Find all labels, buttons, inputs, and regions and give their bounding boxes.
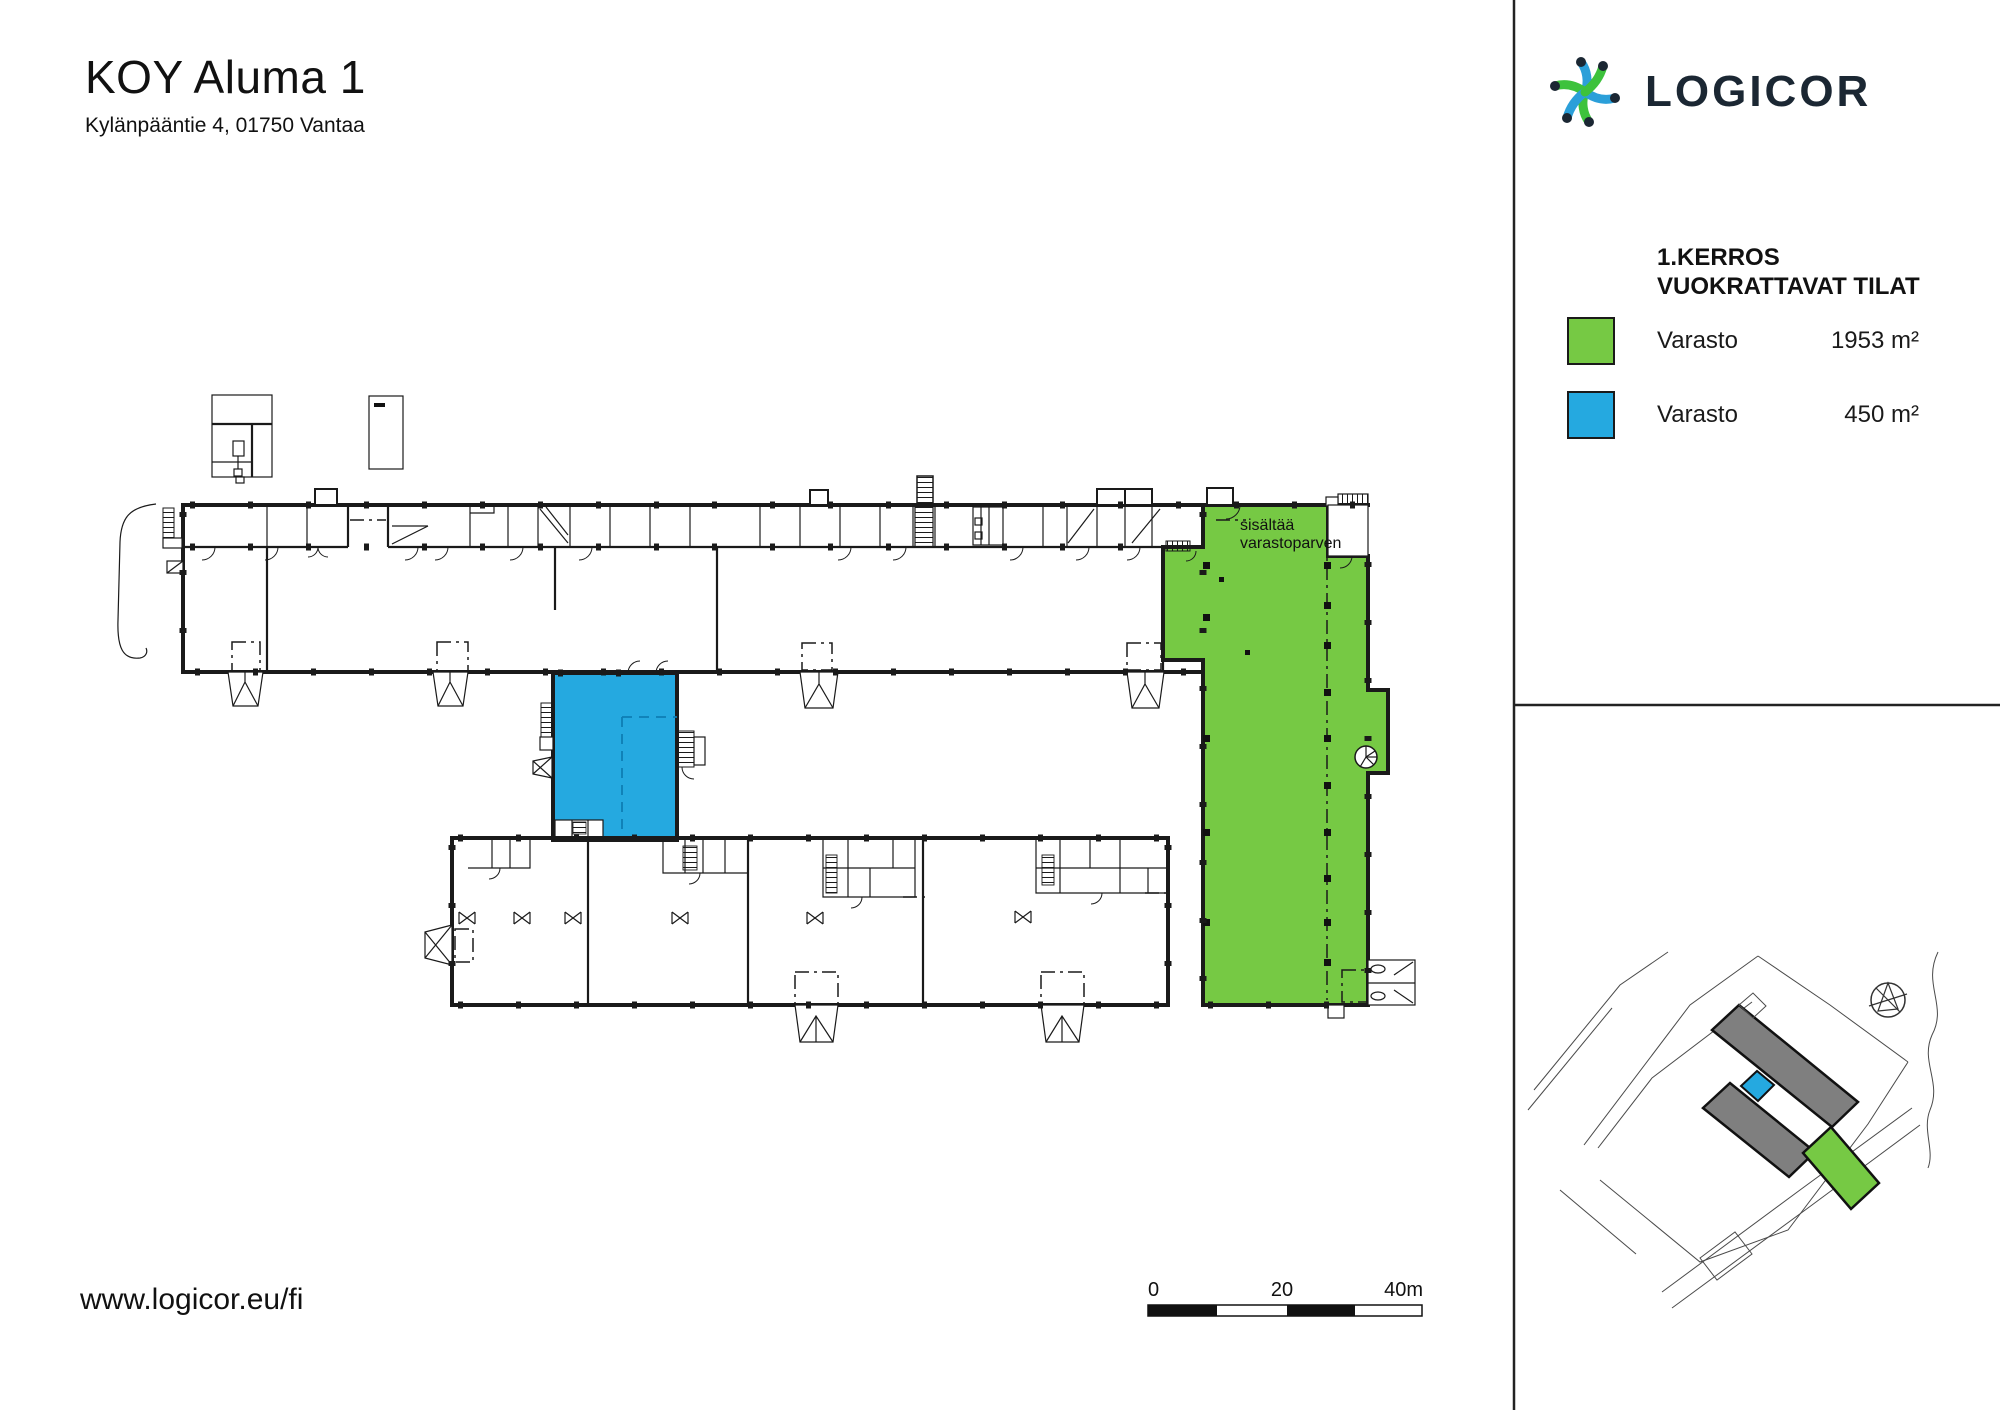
logicor-wordmark: LOGICOR: [1645, 67, 1871, 117]
legend-swatch-blue: [1567, 391, 1615, 439]
logicor-logo-icon: [1545, 52, 1625, 132]
north-compass-icon: [1869, 983, 1907, 1017]
logicor-logo: LOGICOR: [1545, 52, 1871, 132]
scale-zero: 0: [1148, 1279, 1159, 1301]
property-title: KOY Aluma 1: [85, 50, 366, 104]
legend-label-blue: Varasto: [1657, 401, 1738, 429]
legend-title-line2: VUOKRATTAVAT TILAT: [1657, 272, 1920, 301]
legend-header: 1.KERROS VUOKRATTAVAT TILAT: [1657, 243, 1920, 301]
bottom-wing: [425, 838, 1172, 1042]
legend-area-green: 1953 m²: [1831, 327, 1919, 355]
blue-highlight-area: [553, 673, 677, 840]
legend-swatch-green: [1567, 317, 1615, 365]
legend-area-blue: 450 m²: [1844, 401, 1919, 429]
top-wing-docks: [228, 672, 1164, 708]
annotation-line2: varastoparven: [1240, 535, 1341, 552]
title-block: KOY Aluma 1 Kylänpääntie 4, 01750 Vantaa: [85, 50, 366, 138]
floor-plan: sisältää varastoparven 0 20 40m: [0, 0, 2000, 1410]
roof-drain-symbols: [459, 911, 1031, 924]
outbuilding-a: [212, 395, 272, 483]
legend-title-line1: 1.KERROS: [1657, 243, 1920, 272]
legend-row-green: Varasto 1953 m²: [1567, 317, 1919, 365]
green-highlight-area: [1163, 505, 1388, 1005]
floorplan-page: { "document": { "title": "KOY Aluma 1", …: [0, 0, 2000, 1410]
scale-mid: 20: [1271, 1279, 1293, 1301]
driveway-curve: [118, 504, 156, 658]
site-green-unit: [1803, 1127, 1879, 1209]
annotation-line1: sisältää: [1240, 517, 1294, 534]
website-url: www.logicor.eu/fi: [80, 1283, 303, 1317]
legend-row-blue: Varasto 450 m²: [1567, 391, 1919, 439]
scale-end: 40m: [1384, 1279, 1423, 1301]
panel-dividers: [1514, 0, 2000, 1410]
scale-bar: 0 20 40m: [1148, 1279, 1423, 1316]
property-address: Kylänpääntie 4, 01750 Vantaa: [85, 114, 366, 138]
site-map: [1528, 952, 1938, 1308]
outbuilding-b: [369, 396, 403, 469]
legend-label-green: Varasto: [1657, 327, 1738, 355]
